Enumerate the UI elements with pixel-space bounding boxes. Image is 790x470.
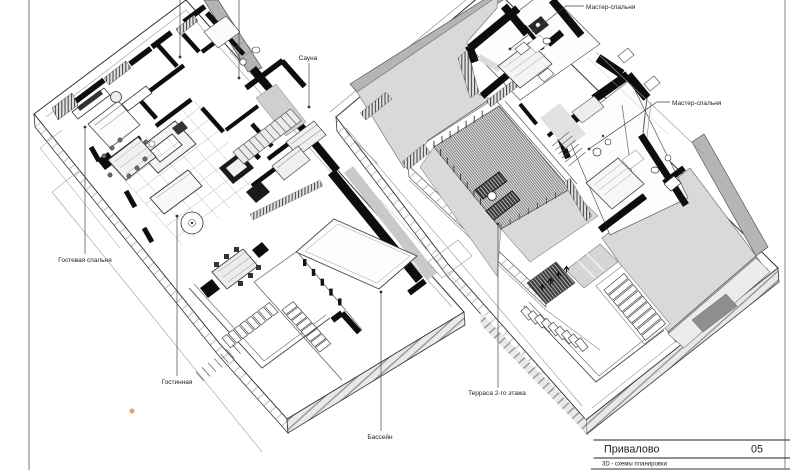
svg-text:Терраса 2-го этажа: Терраса 2-го этажа [468,390,526,397]
svg-text:05: 05 [751,444,763,456]
svg-text:Бассейн: Бассейн [367,433,393,441]
svg-text:Гостинная: Гостинная [162,379,193,386]
svg-text:3D - схемы планировки: 3D - схемы планировки [602,462,667,468]
svg-text:Мастер-спальня: Мастер-спальня [586,4,636,11]
svg-text:Гостевая спальня: Гостевая спальня [58,257,112,264]
svg-text:Привалово: Привалово [604,444,659,456]
svg-text:Сауна: Сауна [299,55,318,62]
svg-text:Мастер-спальня: Мастер-спальня [672,100,722,107]
